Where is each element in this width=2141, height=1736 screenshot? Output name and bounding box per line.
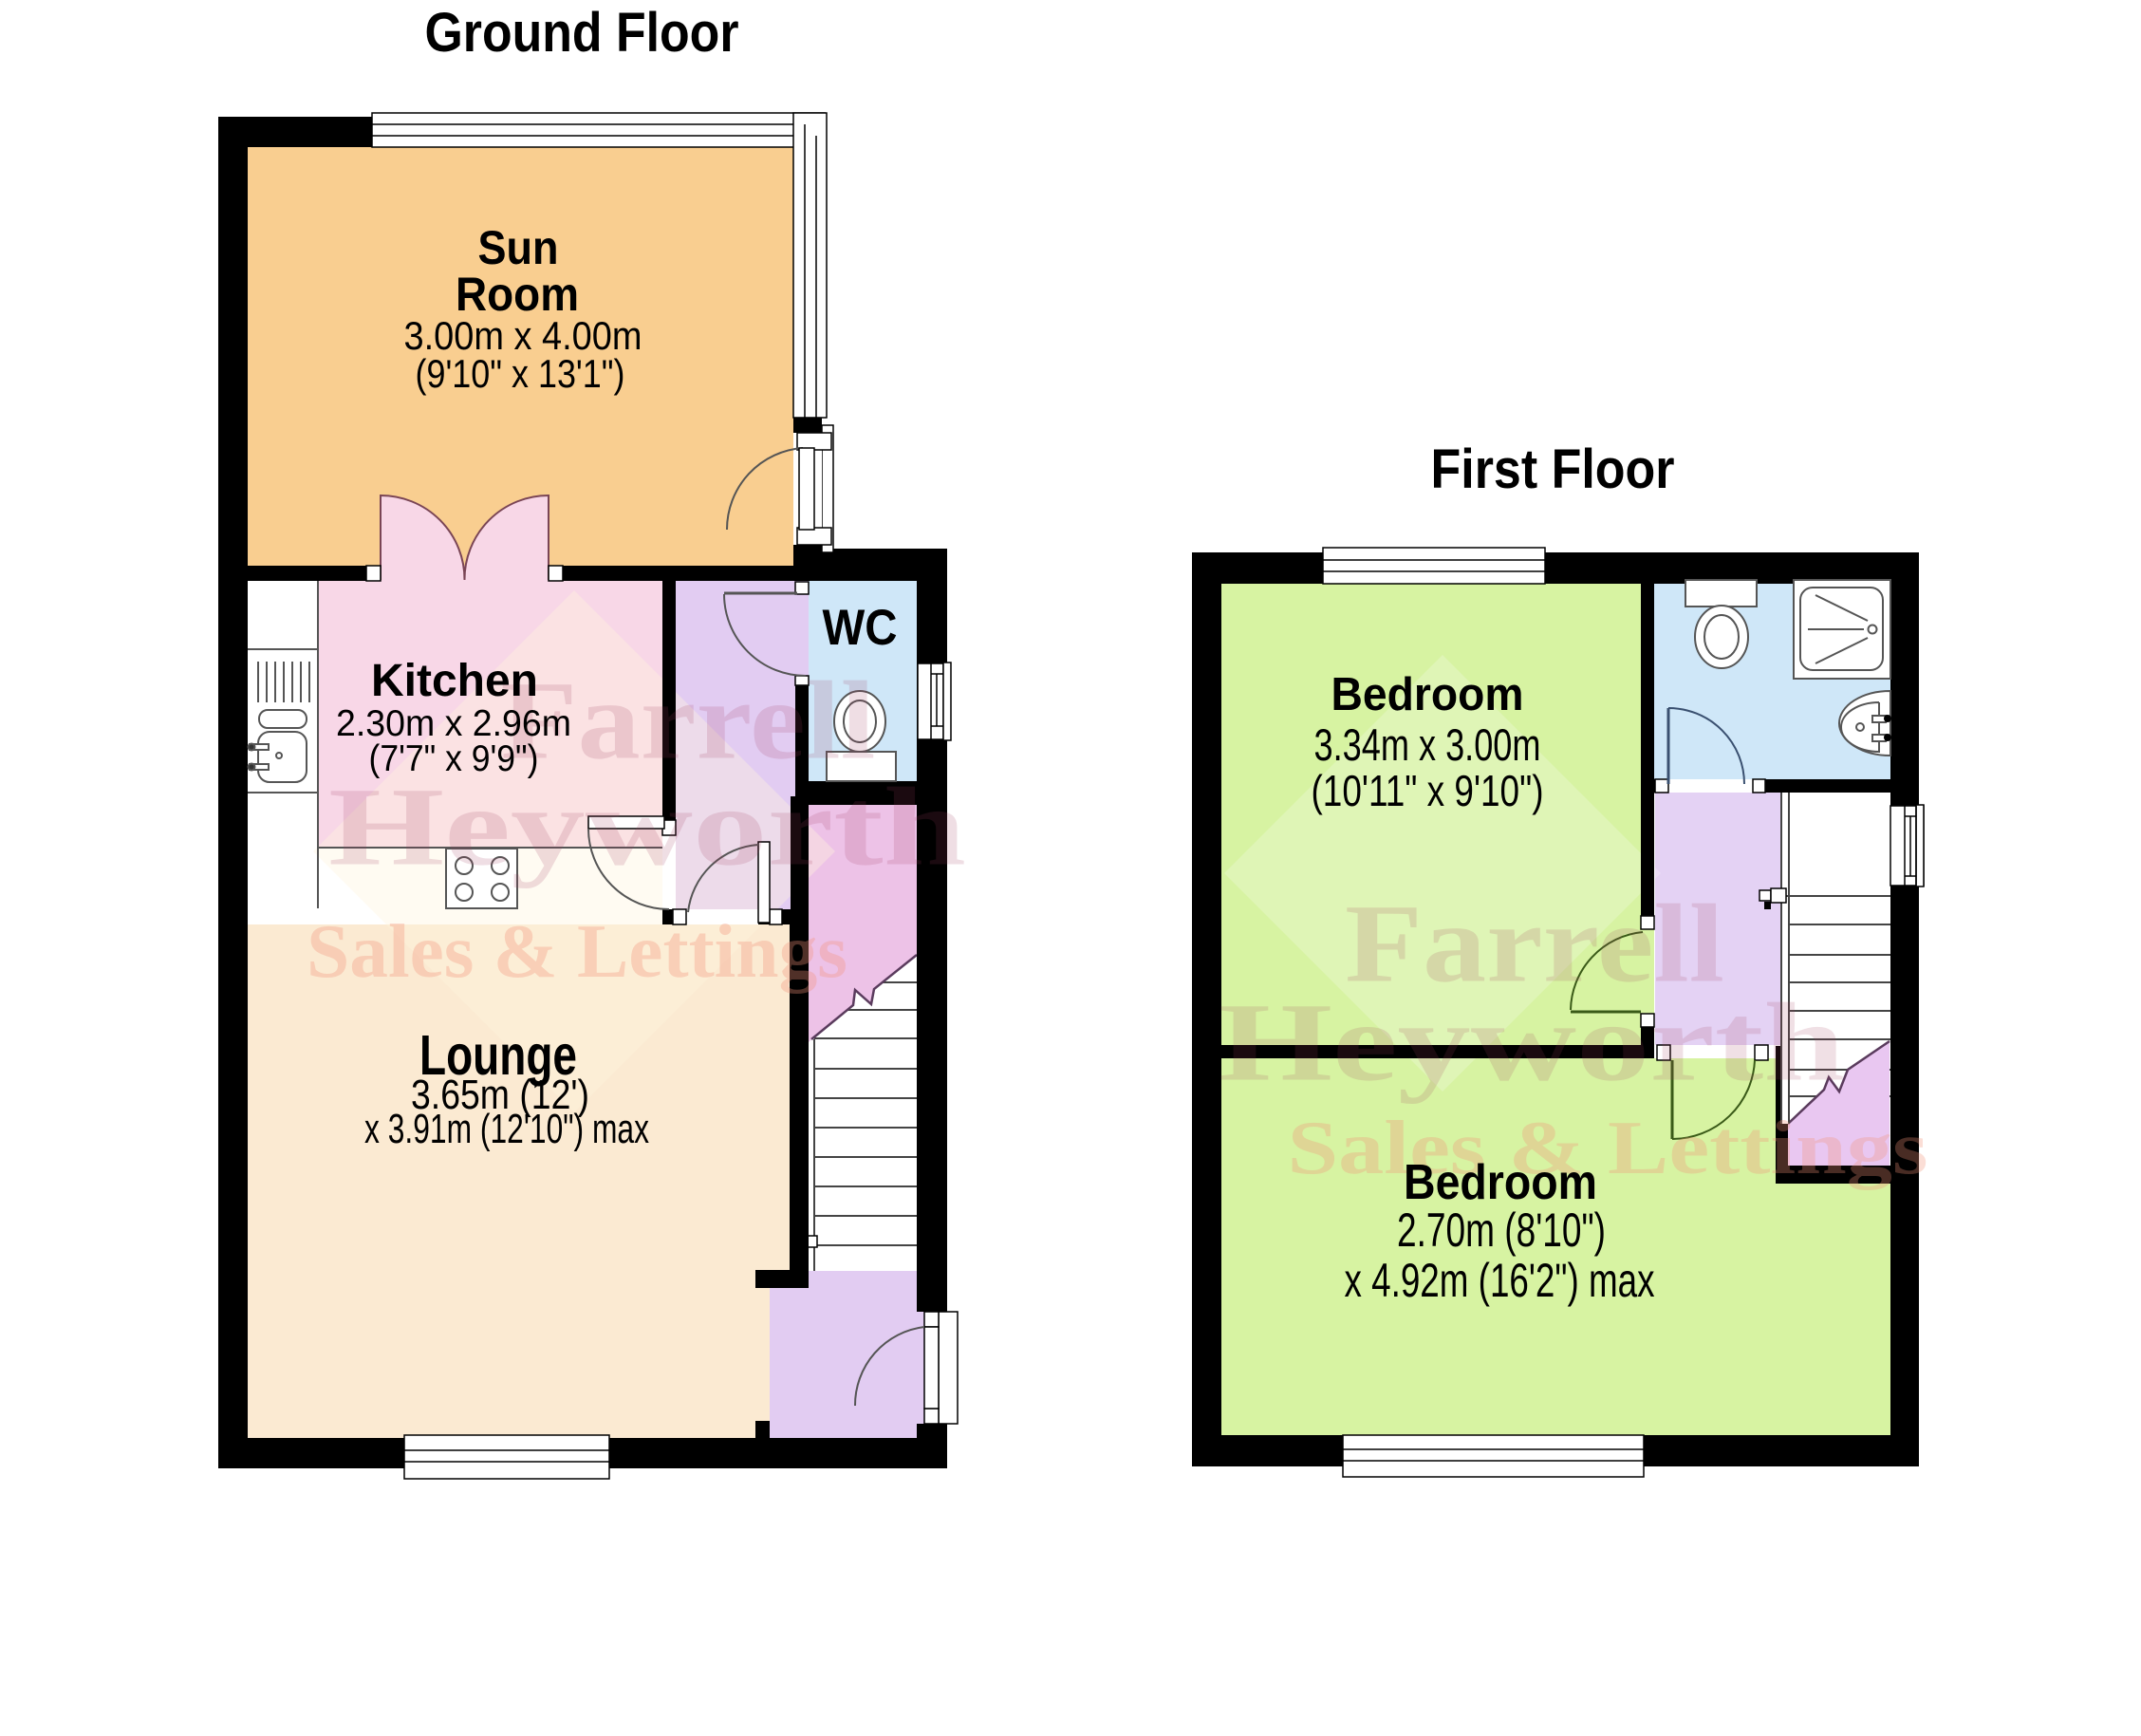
svg-text:3.34m x 3.00m: 3.34m x 3.00m [1314,719,1541,770]
svg-text:Sales & Lettings: Sales & Lettings [1288,1107,1928,1190]
svg-text:Heyworth: Heyworth [1219,980,1845,1105]
svg-text:(10'11" x 9'10"): (10'11" x 9'10") [1312,766,1544,815]
svg-text:WC: WC [823,600,898,656]
svg-text:Sales & Lettings: Sales & Lettings [307,910,847,994]
svg-text:(7'7" x 9'9"): (7'7" x 9'9") [369,738,539,779]
svg-text:x 3.91m (12'10") max: x 3.91m (12'10") max [364,1106,649,1152]
svg-text:(9'10" x 13'1"): (9'10" x 13'1") [416,351,625,396]
svg-text:Bedroom: Bedroom [1331,669,1524,720]
svg-text:2.70m (8'10"): 2.70m (8'10") [1397,1204,1606,1257]
svg-text:Sun: Sun [478,221,559,274]
svg-text:x 4.92m (16'2") max: x 4.92m (16'2") max [1345,1254,1655,1307]
svg-text:First Floor: First Floor [1431,439,1675,500]
svg-text:Heyworth: Heyworth [328,765,966,889]
svg-text:Bedroom: Bedroom [1404,1155,1597,1210]
svg-text:Ground Floor: Ground Floor [425,2,739,64]
svg-text:Kitchen: Kitchen [371,656,538,706]
